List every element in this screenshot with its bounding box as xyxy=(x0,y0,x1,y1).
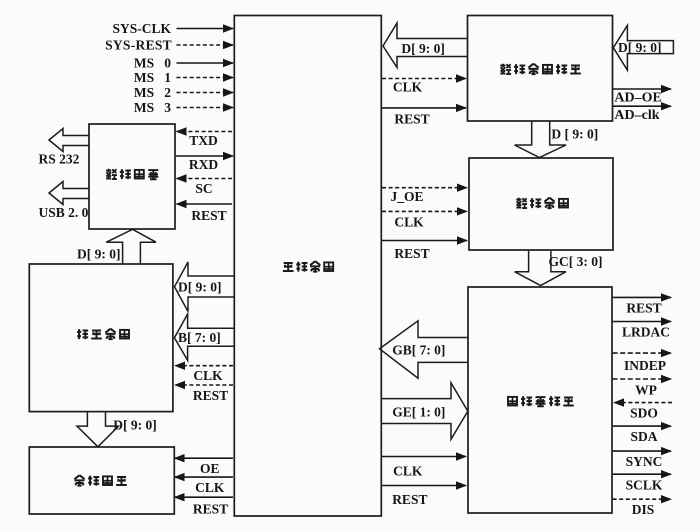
svg-text:LRDAC: LRDAC xyxy=(622,325,670,340)
svg-text:SYS-REST: SYS-REST xyxy=(105,38,172,53)
svg-text:DIS: DIS xyxy=(632,502,655,517)
svg-text:INDEP: INDEP xyxy=(624,358,666,373)
svg-text:SYS-CLK: SYS-CLK xyxy=(112,21,171,36)
svg-text:TXD: TXD xyxy=(189,133,218,148)
svg-text:CLK: CLK xyxy=(393,80,423,95)
svg-text:WP: WP xyxy=(635,382,657,397)
svg-text:SCLK: SCLK xyxy=(626,478,663,493)
svg-text:SDA: SDA xyxy=(630,429,657,444)
svg-text:J_OE: J_OE xyxy=(390,189,423,204)
svg-text:B[ 7: 0]: B[ 7: 0] xyxy=(178,330,221,345)
svg-text:D[ 9: 0]: D[ 9: 0] xyxy=(77,246,121,261)
svg-text:GC[ 3: 0]: GC[ 3: 0] xyxy=(549,254,603,269)
svg-text:REST: REST xyxy=(394,112,429,127)
svg-text:CLK: CLK xyxy=(394,215,424,230)
svg-text:D[ 9: 0]: D[ 9: 0] xyxy=(178,280,222,295)
svg-text:D [ 9: 0]: D [ 9: 0] xyxy=(551,126,598,141)
svg-text:USB 2. 0: USB 2. 0 xyxy=(39,205,89,220)
svg-text:D[ 9: 0]: D[ 9: 0] xyxy=(618,40,662,55)
svg-text:D[ 9: 0]: D[ 9: 0] xyxy=(401,41,445,56)
svg-text:REST: REST xyxy=(394,246,429,261)
svg-text:MS 0: MS 0 xyxy=(134,56,171,71)
svg-text:SC: SC xyxy=(195,181,212,196)
svg-text:CLK: CLK xyxy=(195,480,225,495)
svg-text:AD–OE: AD–OE xyxy=(614,91,661,106)
svg-text:MS 1: MS 1 xyxy=(134,70,171,85)
svg-text:RXD: RXD xyxy=(189,157,218,172)
svg-text:CLK: CLK xyxy=(193,368,223,383)
svg-text:GE[ 1: 0]: GE[ 1: 0] xyxy=(392,405,445,420)
svg-text:CLK: CLK xyxy=(393,463,423,478)
svg-text:REST: REST xyxy=(392,492,427,507)
svg-text:RS 232: RS 232 xyxy=(39,152,80,167)
svg-text:MS 2: MS 2 xyxy=(134,85,171,100)
svg-text:MS 3: MS 3 xyxy=(134,100,171,115)
svg-text:REST: REST xyxy=(626,301,661,316)
svg-text:REST: REST xyxy=(193,388,228,403)
svg-text:GB[ 7: 0]: GB[ 7: 0] xyxy=(392,343,445,358)
svg-text:AD–clk: AD–clk xyxy=(614,108,659,123)
svg-text:REST: REST xyxy=(193,501,228,516)
svg-text:OE: OE xyxy=(200,461,220,476)
svg-text:REST: REST xyxy=(191,208,226,223)
svg-text:D[ 9: 0]: D[ 9: 0] xyxy=(113,417,157,432)
svg-text:SDO: SDO xyxy=(630,406,658,421)
svg-text:SYNC: SYNC xyxy=(626,454,663,469)
